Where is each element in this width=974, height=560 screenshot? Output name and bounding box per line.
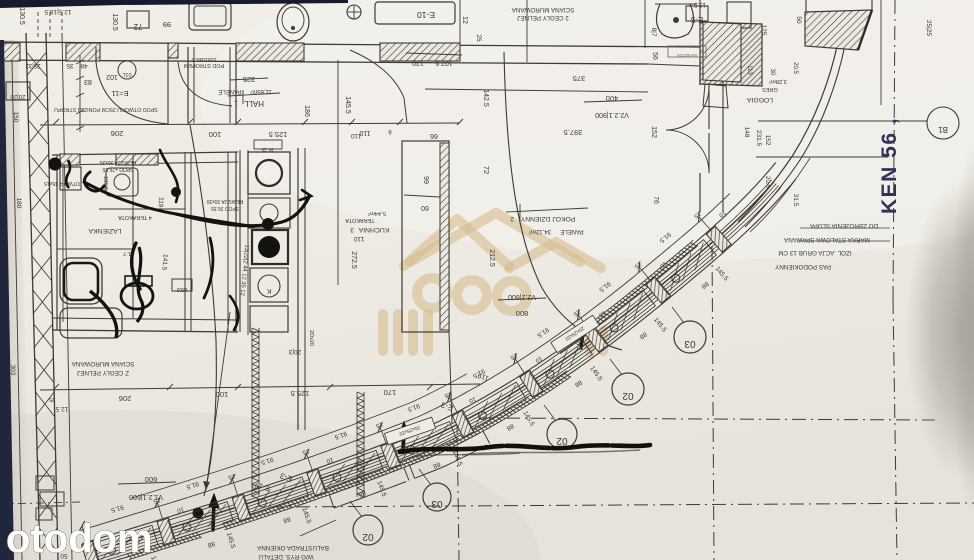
svg-text:3: 3 (350, 226, 354, 233)
svg-text:25: 25 (49, 396, 55, 402)
svg-text:76: 76 (652, 196, 659, 204)
svg-text:SPOD 26.55: SPOD 26.55 (211, 205, 239, 211)
svg-text:231.5: 231.5 (755, 130, 762, 147)
svg-text:01L: 01L (122, 71, 131, 77)
svg-text:25|25: 25|25 (925, 20, 932, 37)
svg-text:206: 206 (119, 394, 132, 403)
svg-text:5,44m²: 5,44m² (368, 210, 386, 216)
svg-text:34,12m²: 34,12m² (529, 228, 551, 234)
svg-text:35: 35 (66, 62, 74, 69)
svg-text:IZOL .ACJA GRUB.13 CM: IZOL .ACJA GRUB.13 CM (778, 249, 851, 256)
svg-text:3,28m²: 3,28m² (769, 78, 787, 84)
svg-text:119: 119 (157, 197, 165, 208)
svg-text:SCIANA MUROWANA: SCIANA MUROWANA (511, 6, 575, 13)
svg-text:170: 170 (384, 388, 397, 397)
svg-text:GRES: GRES (762, 86, 778, 92)
svg-text:72: 72 (482, 166, 491, 174)
svg-text:125: 125 (760, 25, 767, 36)
svg-text:60: 60 (421, 204, 429, 211)
svg-text:2 CEGLY PELNEJ: 2 CEGLY PELNEJ (517, 14, 569, 21)
svg-text:PAS PODOKIENNY: PAS PODOKIENNY (774, 263, 831, 270)
svg-text:150: 150 (12, 112, 19, 123)
svg-text:397.5: 397.5 (564, 128, 583, 137)
svg-text:180: 180 (15, 198, 22, 209)
svg-text:107.5: 107.5 (435, 59, 453, 66)
svg-text:102: 102 (106, 73, 118, 80)
svg-text:B1: B1 (938, 125, 948, 134)
svg-text:-IK 25: -IK 25 (261, 146, 275, 152)
svg-text:W/G RYS. DETALU: W/G RYS. DETALU (258, 553, 314, 560)
svg-text:LOGGIA: LOGGIA (747, 96, 774, 103)
svg-text:20|20: 20|20 (10, 93, 26, 99)
svg-text:MARKA STALOWA SPAWANA: MARKA STALOWA SPAWANA (783, 236, 870, 243)
svg-text:25: 25 (475, 34, 482, 42)
svg-text:V1.2.1|600: V1.2.1|600 (129, 493, 163, 500)
svg-text:10x10ELE: 10x10ELE (191, 56, 217, 62)
svg-text:03: 03 (431, 498, 443, 509)
svg-text:130.5: 130.5 (18, 7, 25, 25)
svg-text:E-10: E-10 (417, 10, 435, 20)
svg-text:152: 152 (650, 126, 657, 138)
svg-text:99: 99 (422, 176, 429, 184)
svg-text:56: 56 (651, 52, 658, 60)
svg-text:48: 48 (80, 62, 88, 69)
svg-text:HALL: HALL (243, 99, 264, 108)
svg-text:SCIANA MUROWANA: SCIANA MUROWANA (71, 360, 135, 367)
svg-text:12.5|18.5: 12.5|18.5 (44, 8, 71, 15)
svg-text:E=11: E=11 (111, 89, 128, 98)
svg-text:800: 800 (516, 309, 529, 318)
svg-text:TERAKOTA: TERAKOTA (345, 217, 375, 223)
svg-text:12.5: 12.5 (55, 405, 68, 412)
svg-text:272.5: 272.5 (350, 251, 357, 269)
svg-text:30: 30 (769, 69, 775, 76)
svg-text:125.5: 125.5 (269, 130, 288, 139)
svg-text:72: 72 (133, 22, 142, 31)
svg-text:11,65m²: 11,65m² (250, 88, 272, 94)
svg-text:REWIZJA 30x30: REWIZJA 30x30 (99, 159, 136, 165)
svg-text:1:7: 1:7 (123, 250, 131, 256)
svg-text:2Dx20: 2Dx20 (308, 330, 314, 346)
svg-text:100: 100 (216, 390, 229, 399)
svg-text:152: 152 (764, 135, 771, 146)
svg-text:REWIZJA 30x30: REWIZJA 30x30 (206, 198, 243, 204)
svg-text:145.5: 145.5 (344, 96, 351, 114)
svg-text:2: 2 (510, 215, 514, 222)
svg-text:130.5: 130.5 (111, 13, 118, 31)
svg-text:POKOJ DZIENNY: POKOJ DZIENNY (520, 215, 575, 222)
svg-text:BALUSTRADA OKIENNA: BALUSTRADA OKIENNA (256, 544, 329, 551)
svg-text:100: 100 (209, 130, 222, 139)
svg-text:POD STROPEM: POD STROPEM (183, 62, 224, 68)
svg-text:212.5: 212.5 (488, 249, 495, 267)
svg-text:02: 02 (362, 531, 374, 542)
svg-text:148: 148 (743, 127, 750, 138)
svg-text:83: 83 (84, 78, 92, 85)
svg-text:Z CEGLY PELNEJ: Z CEGLY PELNEJ (77, 369, 129, 376)
svg-text:8|7: 8|7 (650, 28, 657, 37)
svg-text:142.5: 142.5 (482, 89, 489, 107)
svg-text:03: 03 (684, 338, 696, 349)
svg-text:SPOD OTWORU 25CM PONIZEJ STROP: SPOD OTWORU 25CM PONIZEJ STROPU (54, 106, 158, 112)
svg-text:66: 66 (430, 132, 438, 139)
svg-text:375: 375 (573, 74, 586, 83)
svg-text:20.5: 20.5 (792, 62, 798, 74)
svg-text:02: 02 (556, 435, 568, 446)
svg-text:206: 206 (111, 129, 124, 138)
svg-text:110: 110 (350, 132, 361, 139)
svg-text:120: 120 (412, 59, 424, 66)
svg-text:20|3: 20|3 (288, 348, 301, 355)
svg-text:E-5: E-5 (690, 15, 703, 24)
svg-text:50: 50 (795, 16, 802, 24)
svg-text:99: 99 (163, 20, 171, 29)
svg-text:02: 02 (622, 390, 634, 401)
svg-text:110: 110 (353, 235, 364, 242)
svg-text:04/08/2020: 04/08/2020 (676, 53, 697, 58)
svg-text:12: 12 (461, 16, 468, 24)
svg-text:141.5: 141.5 (160, 254, 168, 271)
svg-text:KEN 56 ,: KEN 56 , (878, 117, 901, 214)
svg-text:KUCHNIA: KUCHNIA (358, 226, 389, 233)
svg-text:otodom: otodom (6, 517, 153, 560)
svg-text:186: 186 (303, 105, 310, 117)
svg-text:PANELE: PANELE (560, 228, 583, 234)
svg-text:125.5: 125.5 (291, 389, 310, 398)
svg-text:113: 113 (746, 65, 752, 75)
svg-text:LAZIENKA: LAZIENKA (88, 227, 121, 234)
svg-text:x302: x302 (176, 286, 187, 292)
svg-text:31.5: 31.5 (792, 194, 799, 207)
svg-text:K: K (266, 287, 271, 294)
svg-text:4 TERAKOTA: 4 TERAKOTA (118, 214, 152, 220)
svg-text:V2.2.1|900: V2.2.1|900 (595, 111, 629, 118)
svg-text:SPOD +26.55: SPOD +26.55 (102, 166, 133, 172)
svg-text:25|32: 25|32 (25, 62, 41, 68)
